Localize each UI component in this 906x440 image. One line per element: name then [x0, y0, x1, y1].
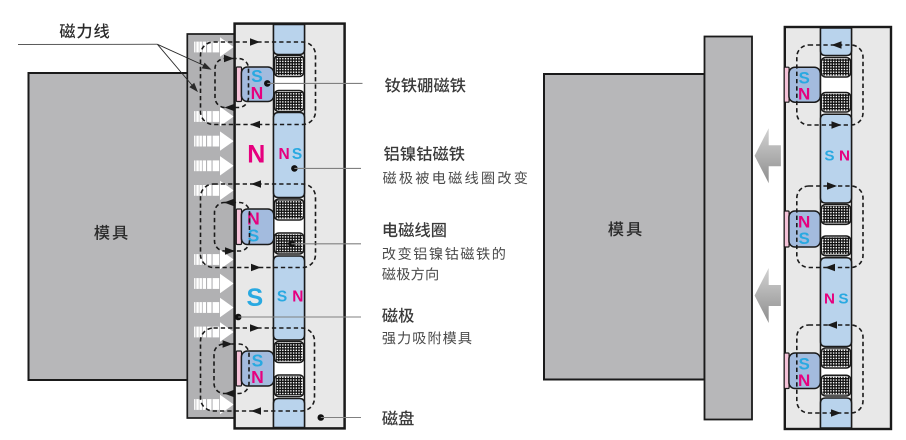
svg-text:N: N — [839, 148, 850, 165]
svg-text:N: N — [798, 371, 810, 390]
svg-text:S: S — [838, 291, 848, 308]
svg-text:N: N — [251, 367, 264, 387]
svg-text:S: S — [292, 146, 302, 163]
svg-text:N: N — [292, 289, 303, 306]
svg-text:N: N — [824, 291, 835, 308]
svg-text:N: N — [278, 146, 289, 163]
svg-text:N: N — [798, 85, 810, 104]
svg-text:S: S — [799, 229, 810, 248]
svg-text:N: N — [251, 83, 264, 103]
svg-text:S: S — [277, 289, 287, 306]
svg-text:S: S — [246, 284, 263, 312]
svg-text:N: N — [247, 140, 265, 168]
svg-text:S: S — [824, 148, 834, 165]
